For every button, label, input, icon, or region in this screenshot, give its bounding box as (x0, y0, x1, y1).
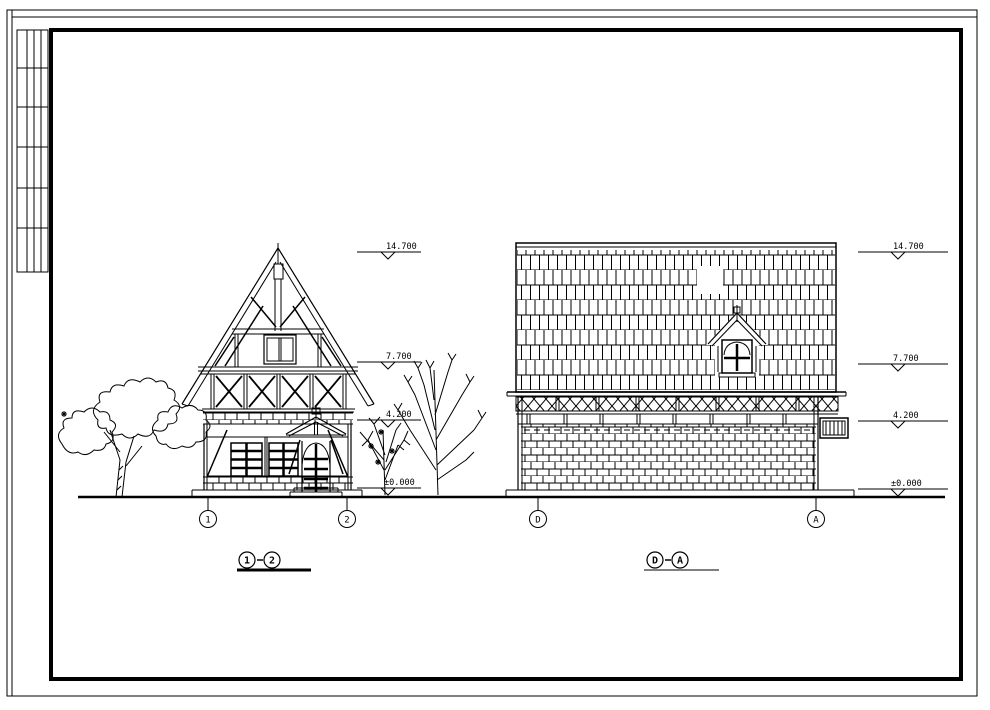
level-value: 14.700 (386, 242, 417, 252)
level-marker: 4.200 (858, 411, 948, 428)
axis-bubble-D: D (530, 497, 547, 528)
base-brick-band (192, 477, 362, 497)
level-marker: 4.200 (357, 410, 421, 427)
right-elevation-title: D A (644, 552, 719, 570)
right-elevation: 14.700 7.700 4.200 ±0.000 D A D A (506, 242, 948, 570)
level-value: 7.700 (386, 352, 412, 362)
post-band (516, 411, 838, 424)
left-elevation: 14.700 7.700 4.200 ±0.000 1 2 1 2 (182, 242, 421, 570)
level-marker: 7.700 (357, 352, 421, 369)
axis-bubble-2: 2 (339, 497, 356, 528)
roof-truss (215, 279, 341, 367)
lattice-band (516, 397, 838, 411)
level-marker: 7.700 (858, 354, 948, 371)
level-value: 4.200 (893, 411, 919, 421)
level-value: ±0.000 (384, 478, 415, 488)
title-char: 1 (244, 556, 250, 567)
left-elevation-title: 1 2 (237, 552, 311, 570)
axis-bubble-1: 1 (200, 497, 217, 528)
cad-sheet: 14.700 7.700 4.200 ±0.000 D A D A (0, 0, 990, 710)
eaves-band (507, 392, 846, 396)
level-value: ±0.000 (891, 479, 922, 489)
level-marker: ±0.000 (357, 478, 421, 495)
level-marker: 14.700 (858, 242, 948, 259)
casement-window-2 (269, 443, 298, 476)
level-marker: ±0.000 (858, 479, 948, 496)
upper-brick-band (203, 413, 353, 424)
title-char: D (652, 556, 658, 567)
x-brace-band (198, 367, 358, 412)
level-marker: 14.700 (357, 242, 421, 259)
level-value: 14.700 (893, 242, 924, 252)
level-markers-right: 14.700 7.700 4.200 ±0.000 (858, 242, 948, 496)
gable-window (264, 335, 296, 364)
axis-label: D (535, 516, 540, 526)
level-value: 7.700 (893, 354, 919, 364)
title-char: A (677, 556, 683, 567)
drawing-canvas: 14.700 7.700 4.200 ±0.000 D A D A (0, 0, 990, 710)
axis-label: 2 (344, 516, 349, 526)
title-char: 2 (269, 556, 275, 567)
vent-box (819, 417, 849, 439)
shingle-roof (516, 243, 836, 392)
axis-label: 1 (205, 516, 210, 526)
level-markers-left: 14.700 7.700 4.200 ±0.000 (357, 242, 421, 495)
casement-window-1 (231, 443, 262, 476)
axis-label: A (813, 516, 819, 526)
tree-tall-middle (394, 353, 486, 495)
title-strip-grid (17, 30, 48, 272)
axis-bubble-A: A (808, 497, 825, 528)
